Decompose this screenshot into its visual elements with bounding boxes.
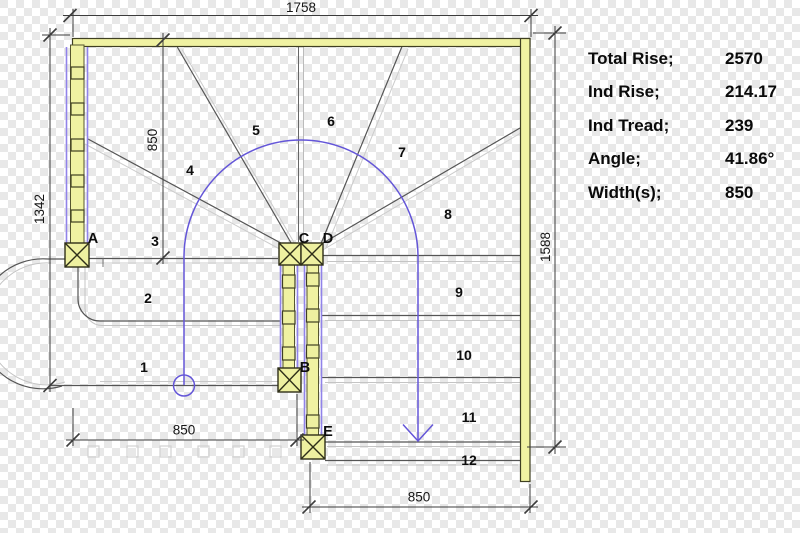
post-label-c: C — [299, 231, 310, 247]
ind-tread-value: 239 — [725, 116, 788, 136]
dim-text-bottom-right: 850 — [408, 490, 431, 505]
ind-rise-value: 214.17 — [725, 82, 788, 102]
left-railing — [67, 45, 88, 243]
tread-number-8: 8 — [444, 206, 452, 222]
ghost-baluster-row — [88, 446, 281, 457]
panel-row-ind-tread: Ind Tread; 239 — [588, 109, 788, 143]
dim-text-top: 1758 — [286, 0, 316, 15]
tread-number-5: 5 — [252, 122, 260, 138]
staircase-plan-screenshot: 1758 1342 850 1588 850 850 1 2 3 4 5 6 7… — [0, 0, 800, 533]
top-wall — [73, 39, 531, 47]
width-value: 850 — [725, 183, 788, 203]
dim-text-right: 1588 — [538, 232, 553, 262]
dim-text-inner-width: 850 — [145, 129, 160, 152]
center-railing-cb — [281, 265, 298, 368]
post-label-a: A — [88, 231, 99, 247]
stair-results-panel: Total Rise; 2570 Ind Rise; 214.17 Ind Tr… — [588, 42, 788, 210]
tread-number-10: 10 — [456, 347, 472, 363]
tread-number-9: 9 — [455, 284, 463, 300]
ind-rise-label: Ind Rise; — [588, 82, 725, 102]
upper-flight-tread-lines — [322, 256, 520, 466]
panel-row-width: Width(s); 850 — [588, 176, 788, 210]
right-wall — [521, 39, 531, 482]
center-railing-de — [305, 265, 322, 435]
angle-value: 41.86° — [725, 149, 788, 169]
tread-number-12: 12 — [461, 452, 477, 468]
tread-number-2: 2 — [144, 290, 152, 306]
angle-label: Angle; — [588, 149, 725, 169]
panel-row-angle: Angle; 41.86° — [588, 143, 788, 177]
ind-tread-label: Ind Tread; — [588, 116, 725, 136]
tread-number-4: 4 — [186, 162, 194, 178]
dim-text-bottom-left: 850 — [173, 423, 196, 438]
tread-number-6: 6 — [327, 113, 335, 129]
total-rise-label: Total Rise; — [588, 49, 725, 69]
post-label-e: E — [323, 424, 333, 440]
panel-row-total-rise: Total Rise; 2570 — [588, 42, 788, 76]
tread-number-1: 1 — [140, 359, 148, 375]
newel-post-c — [279, 243, 301, 265]
post-label-d: D — [323, 231, 333, 247]
newel-post-b — [278, 368, 301, 392]
newel-post-e — [301, 435, 325, 459]
tread-number-7: 7 — [398, 144, 406, 160]
width-label: Width(s); — [588, 183, 725, 203]
tread-number-3: 3 — [151, 233, 159, 249]
panel-row-ind-rise: Ind Rise; 214.17 — [588, 76, 788, 110]
dim-bottom-right-850 — [302, 462, 538, 514]
total-rise-value: 2570 — [725, 49, 788, 69]
lower-flight-tread-lines — [0, 259, 297, 389]
dim-text-left: 1342 — [32, 194, 47, 224]
newel-post-a — [65, 243, 89, 267]
dim-bottom-left-850 — [66, 394, 304, 447]
tread-number-11: 11 — [462, 409, 477, 425]
post-label-b: B — [300, 360, 310, 376]
